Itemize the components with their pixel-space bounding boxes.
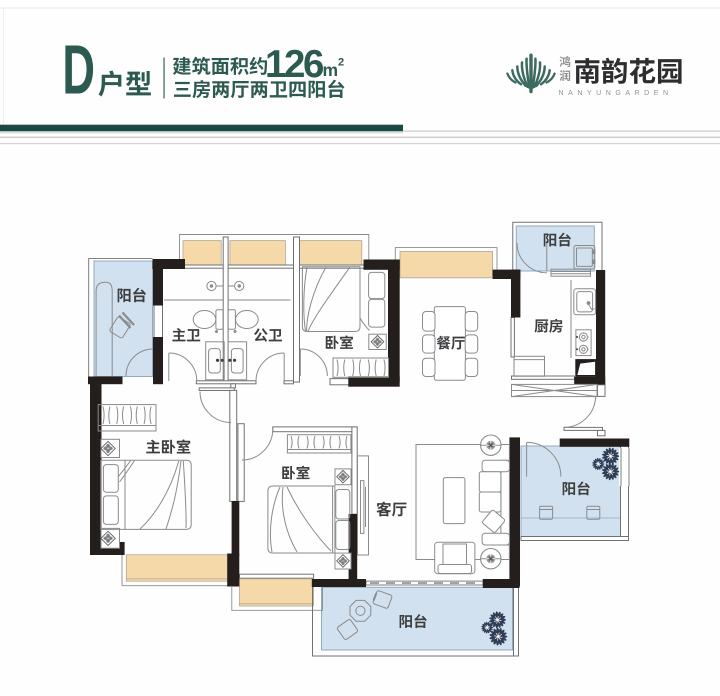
svg-text:2: 2: [338, 57, 344, 69]
svg-text:126: 126: [265, 43, 324, 86]
svg-text:m: m: [323, 60, 339, 80]
svg-text:D: D: [62, 32, 95, 109]
svg-text:NANYUNGARDEN: NANYUNGARDEN: [559, 90, 673, 97]
